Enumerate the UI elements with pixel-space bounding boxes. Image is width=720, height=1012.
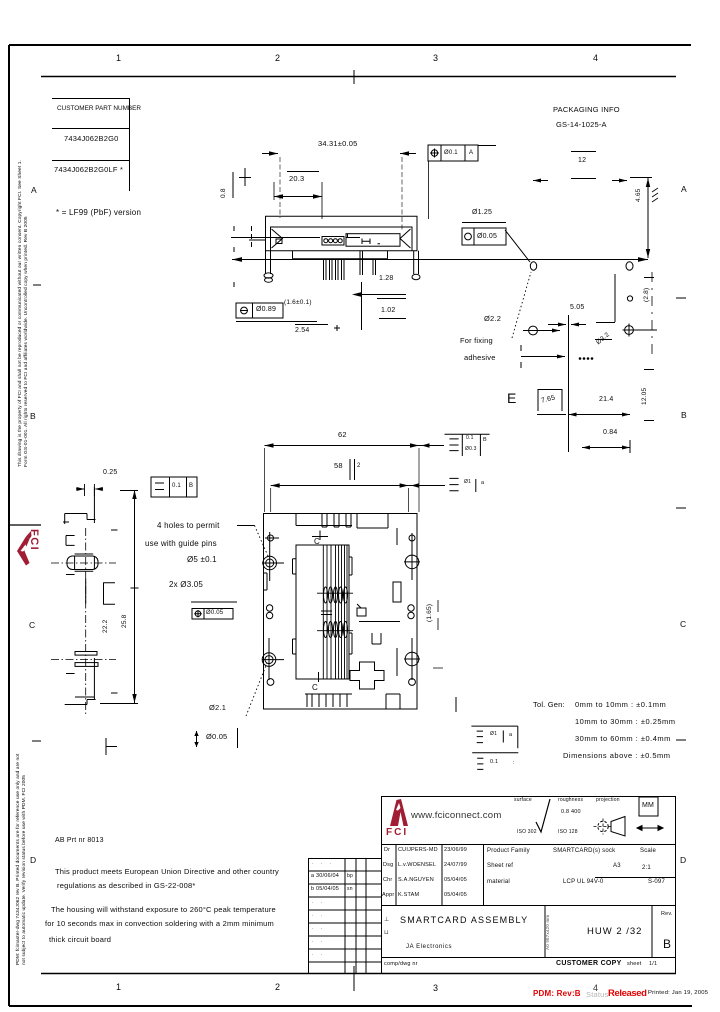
svg-text:FCI: FCI bbox=[28, 529, 40, 551]
